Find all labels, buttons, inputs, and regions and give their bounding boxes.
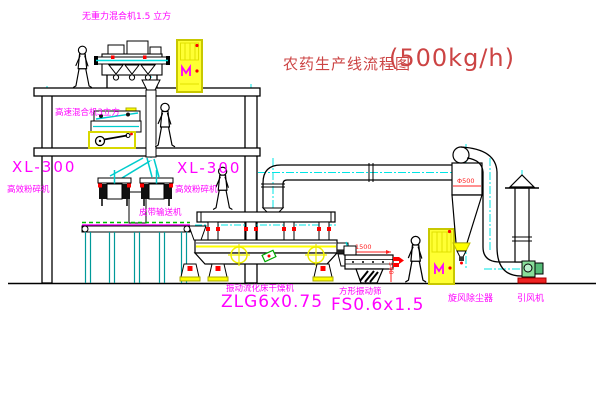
- label-mill-left-name: 高效粉碎机: [7, 186, 50, 195]
- label-cyclone: 旋风除尘器: [448, 295, 493, 304]
- drawing-title-capacity: (500kg/h): [389, 44, 515, 72]
- label-screen-model: FS0.6x1.5: [331, 297, 424, 314]
- worker-figure-1: [73, 46, 91, 87]
- dim-cyclone-diameter: Φ500: [457, 178, 475, 185]
- dim-screen-length: 1500: [355, 244, 372, 251]
- stack-cap-icon: [510, 175, 534, 187]
- label-fan: 引风机: [517, 295, 544, 304]
- label-dryer-model: ZLG6x0.75: [221, 294, 323, 311]
- label-gravity-free-mixer: 无重力混合机1.5 立方: [82, 13, 171, 22]
- worker-figure-4: [406, 236, 426, 281]
- label-belt-conveyor: 皮带输送机: [139, 209, 182, 218]
- induced-draft-fan: [518, 261, 546, 283]
- vibrating-screen: [344, 246, 404, 283]
- cad-drawing-canvas: 农药生产线流程图 (500kg/h) 无重力混合机1.5 立方 高速混合机3立方…: [0, 0, 600, 403]
- control-cabinet-bottom: [429, 229, 454, 284]
- label-high-speed-mixer: 高速混合机3立方: [55, 109, 120, 118]
- label-mill-center-name: 高效粉碎机: [175, 186, 218, 195]
- dim-screen-discharge-height: 540: [388, 262, 395, 274]
- belt-conveyor: [82, 223, 190, 284]
- control-cabinet-top: [177, 40, 202, 92]
- label-mill-left-model: XL-300: [12, 160, 76, 175]
- worker-figure-2: [156, 103, 175, 146]
- gravity-free-mixer: [94, 41, 170, 90]
- label-mill-center-model: XL-300: [177, 161, 241, 176]
- fluid-bed-dryer: [180, 212, 352, 281]
- cyclone-separator: [452, 144, 482, 268]
